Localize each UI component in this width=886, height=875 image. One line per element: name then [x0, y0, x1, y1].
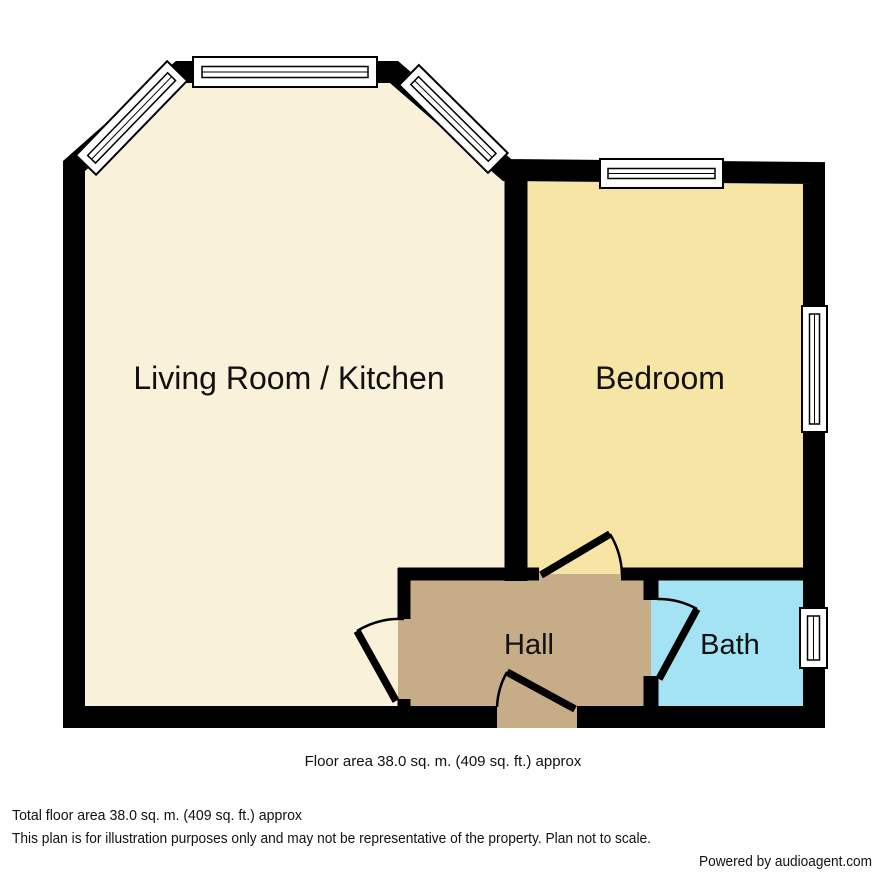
hall-label: Hall [504, 629, 554, 661]
window-icon-bath-right [800, 608, 827, 668]
powered-by-credit: Powered by audioagent.com [699, 853, 872, 870]
window-icon-bedroom-top [600, 159, 723, 188]
window-icon-bedroom-right [802, 306, 827, 432]
living-room-kitchen-label: Living Room / Kitchen [133, 360, 444, 396]
floor-area-note: Floor area 38.0 sq. m. (409 sq. ft.) app… [305, 753, 582, 770]
disclaimer-note: This plan is for illustration purposes o… [12, 830, 651, 847]
bath-label: Bath [700, 629, 760, 661]
bedroom-label: Bedroom [595, 360, 725, 396]
floor-plan-canvas: Living Room / Kitchen Bedroom Hall Bath … [0, 0, 886, 875]
total-floor-area-note: Total floor area 38.0 sq. m. (409 sq. ft… [12, 807, 302, 824]
window-icon-living-top [193, 57, 377, 87]
floor-plan-page: Living Room / Kitchen Bedroom Hall Bath … [0, 0, 886, 875]
